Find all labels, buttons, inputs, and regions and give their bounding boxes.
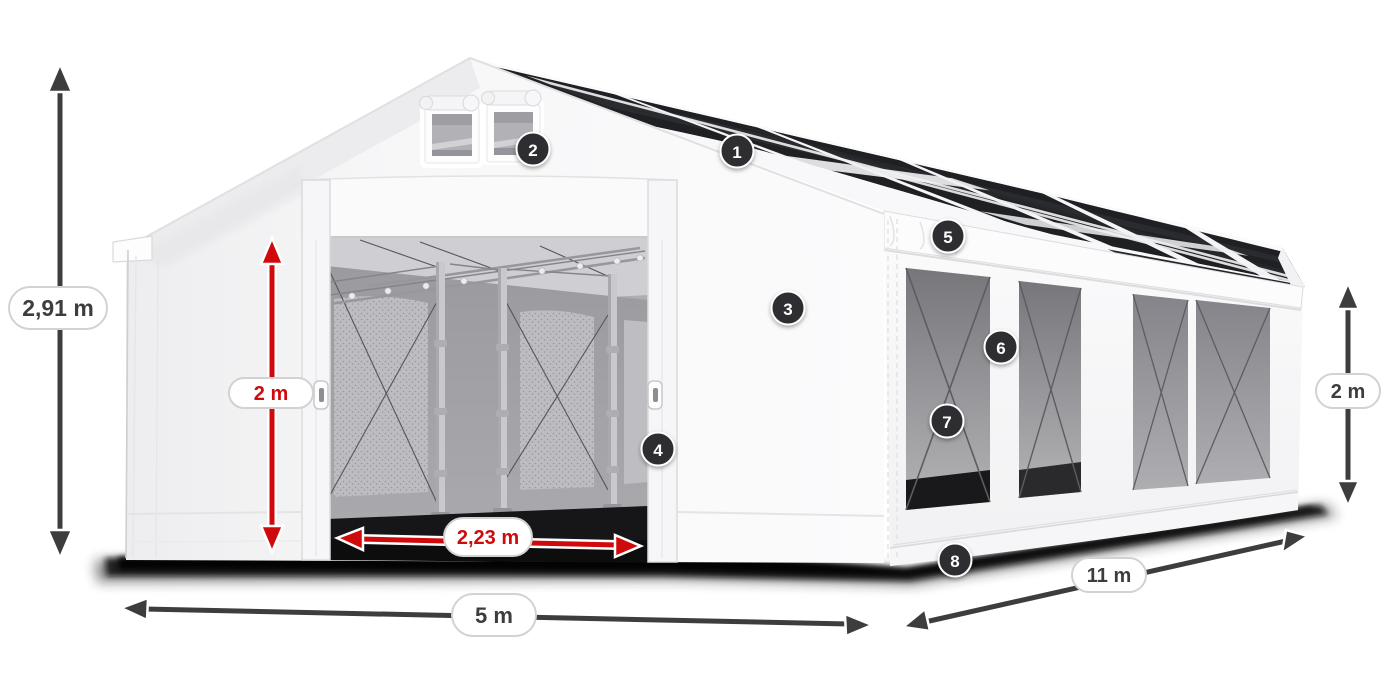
svg-text:11 m: 11 m [1087,565,1131,587]
svg-text:2,23 m: 2,23 m [457,527,519,549]
svg-text:5 m: 5 m [475,603,513,628]
svg-text:2 m: 2 m [254,383,288,405]
svg-text:4: 4 [653,441,663,460]
svg-text:1: 1 [732,143,741,162]
svg-text:3: 3 [783,300,792,319]
svg-text:6: 6 [996,339,1005,358]
svg-text:8: 8 [950,552,959,571]
svg-text:2,91 m: 2,91 m [22,295,94,321]
svg-text:7: 7 [942,413,951,432]
svg-text:2: 2 [528,141,537,160]
svg-text:2 m: 2 m [1331,381,1365,403]
svg-text:5: 5 [943,228,952,247]
